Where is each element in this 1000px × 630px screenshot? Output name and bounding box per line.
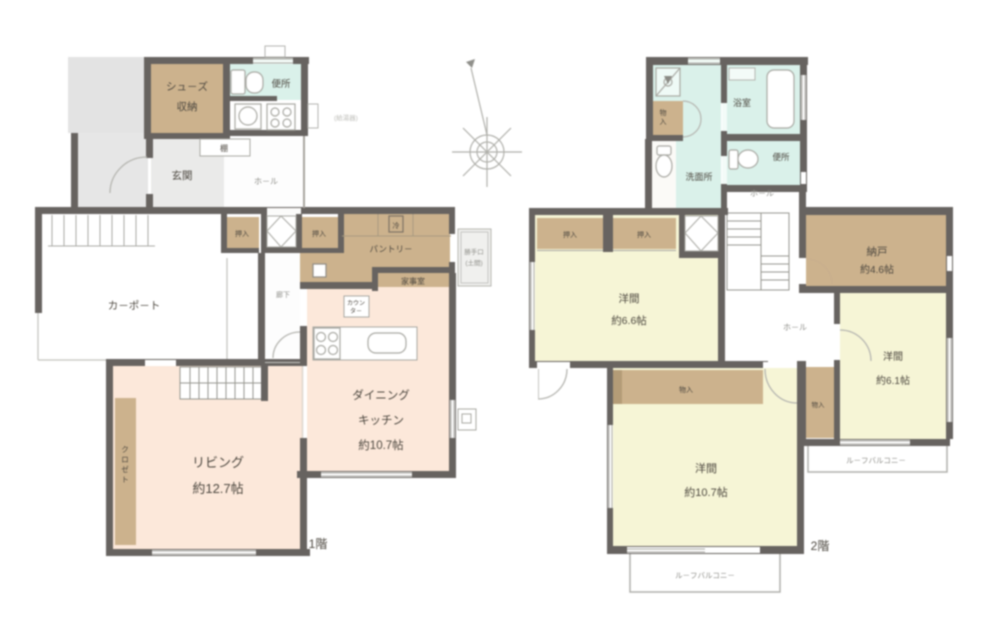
svg-text:約6.1帖: 約6.1帖: [876, 374, 910, 387]
svg-text:2階: 2階: [811, 538, 830, 553]
svg-text:棚: 棚: [220, 143, 228, 153]
svg-text:物入: 物入: [679, 385, 693, 394]
svg-text:物入: 物入: [812, 400, 826, 409]
svg-text:約4.6帖: 約4.6帖: [860, 263, 894, 276]
svg-text:押入: 押入: [235, 229, 249, 238]
svg-text:便所: 便所: [271, 78, 291, 90]
svg-text:ホ－ル: ホ－ル: [783, 323, 807, 332]
svg-text:キッチン: キッチン: [358, 414, 404, 427]
svg-text:押入: 押入: [563, 230, 577, 239]
svg-text:1階: 1階: [309, 536, 328, 551]
svg-text:リビング: リビング: [192, 455, 244, 470]
svg-text:約10.7帖: 約10.7帖: [358, 438, 403, 452]
svg-text:勝手口: 勝手口: [464, 247, 484, 256]
svg-text:パントリ－: パントリ－: [370, 244, 413, 254]
svg-text:ホ－ル: ホ－ル: [750, 189, 774, 198]
svg-text:入: 入: [660, 118, 667, 126]
svg-text:冷: 冷: [393, 221, 400, 230]
svg-text:約12.7帖: 約12.7帖: [192, 481, 243, 496]
svg-text:洗面所: 洗面所: [685, 171, 712, 182]
svg-text:カ－ポ－ト: カ－ポ－ト: [108, 300, 161, 312]
svg-text:(土間): (土間): [465, 258, 482, 267]
svg-text:物: 物: [660, 108, 667, 117]
svg-text:カウン: カウン: [347, 299, 365, 307]
svg-text:押入: 押入: [637, 230, 651, 239]
svg-text:ダイニング: ダイニング: [352, 388, 410, 402]
svg-text:タ－: タ－: [350, 307, 362, 315]
svg-text:(給湯器): (給湯器): [334, 113, 358, 122]
svg-text:洋間: 洋間: [883, 350, 903, 363]
svg-text:ホ－ル: ホ－ル: [254, 177, 278, 186]
svg-text:玄関: 玄関: [172, 169, 193, 182]
svg-text:ク: ク: [121, 445, 129, 454]
svg-text:廊下: 廊下: [276, 290, 290, 299]
svg-text:家事室: 家事室: [401, 276, 425, 286]
svg-text:洋間: 洋間: [695, 461, 717, 475]
svg-text:ゼ: ゼ: [121, 464, 129, 474]
svg-text:洋間: 洋間: [619, 292, 640, 305]
svg-text:押入: 押入: [312, 229, 326, 238]
svg-text:シュ－ズ: シュ－ズ: [166, 80, 208, 93]
svg-text:約6.6帖: 約6.6帖: [611, 314, 647, 327]
svg-text:ル－フバルコニ－: ル－フバルコニ－: [846, 456, 906, 465]
svg-text:ト: ト: [121, 475, 129, 484]
svg-text:約10.7帖: 約10.7帖: [684, 485, 727, 499]
svg-text:収納: 収納: [177, 100, 198, 113]
svg-text:便所: 便所: [772, 152, 790, 162]
svg-text:浴室: 浴室: [733, 97, 751, 108]
svg-text:ロ: ロ: [121, 455, 129, 464]
svg-text:納戸: 納戸: [867, 245, 888, 258]
svg-text:ル－フバルコニ－: ル－フバルコニ－: [675, 571, 735, 580]
